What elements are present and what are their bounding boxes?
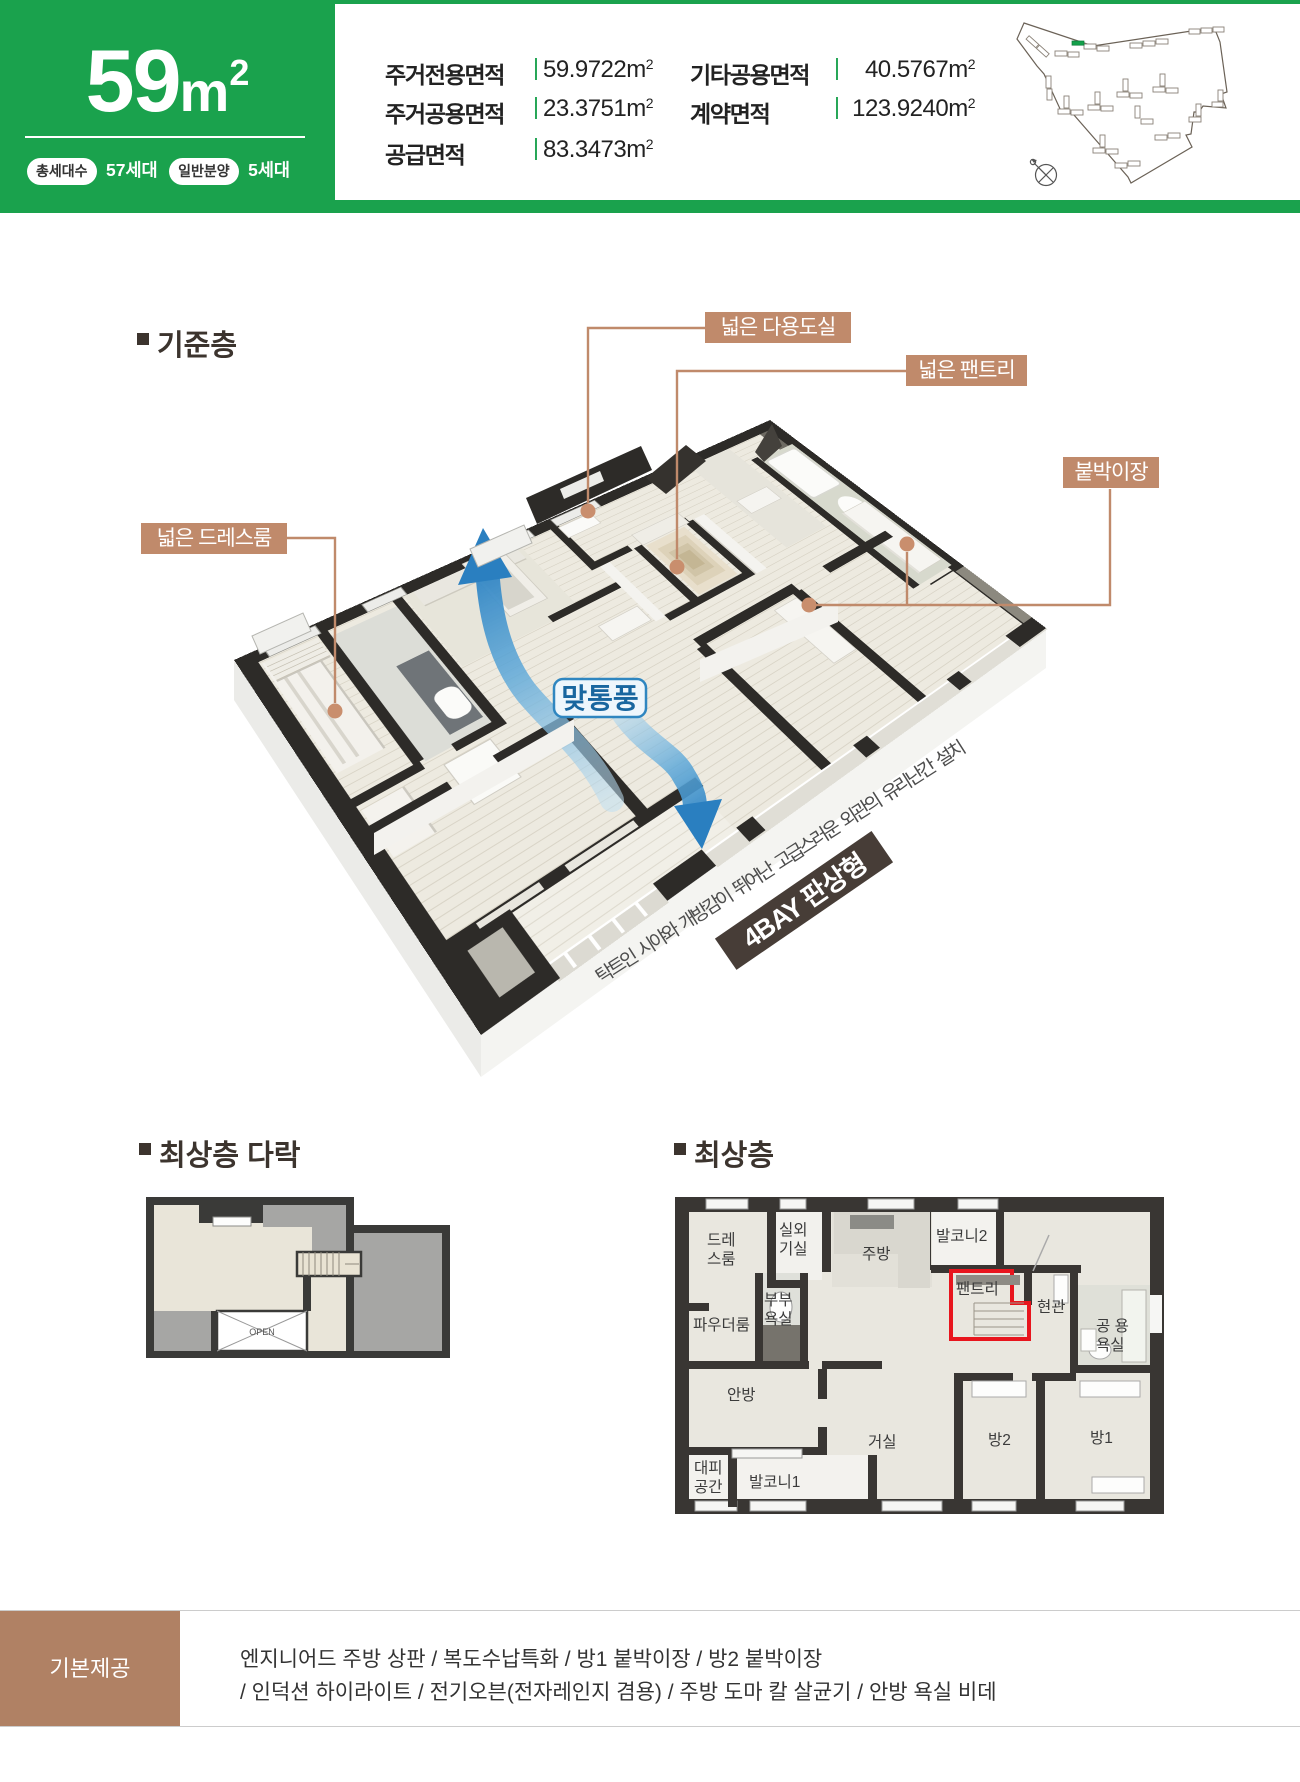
svg-text:발코니2: 발코니2 [936, 1227, 987, 1245]
svg-text:팬트리: 팬트리 [956, 1280, 999, 1298]
svg-text:방1: 방1 [1090, 1429, 1113, 1447]
svg-text:대피: 대피 [694, 1459, 723, 1477]
svg-text:안방: 안방 [727, 1386, 756, 1404]
svg-text:방2: 방2 [988, 1431, 1011, 1449]
svg-text:거실: 거실 [868, 1433, 897, 1451]
svg-text:욕실: 욕실 [764, 1310, 793, 1328]
svg-text:기실: 기실 [779, 1240, 808, 1258]
svg-text:주방: 주방 [862, 1245, 891, 1263]
svg-text:실외: 실외 [779, 1221, 808, 1239]
svg-text:발코니1: 발코니1 [749, 1473, 800, 1491]
svg-text:공간: 공간 [694, 1478, 723, 1496]
svg-text:스룸: 스룸 [707, 1251, 736, 1268]
svg-text:탁트인 시야와 개방감이 뛰어난 고급스러운 외관의 유리난: 탁트인 시야와 개방감이 뛰어난 고급스러운 외관의 유리난간 설치 [592, 737, 968, 988]
svg-text:현관: 현관 [1037, 1298, 1066, 1316]
svg-text:욕실: 욕실 [1096, 1336, 1125, 1354]
svg-text:부부: 부부 [764, 1292, 793, 1309]
svg-text:파우더룸: 파우더룸 [693, 1316, 750, 1334]
svg-text:OPEN: OPEN [249, 1327, 275, 1337]
svg-text:맞통풍: 맞통풍 [561, 683, 638, 714]
svg-text:공 용: 공 용 [1096, 1318, 1129, 1335]
svg-text:드레: 드레 [707, 1231, 736, 1249]
